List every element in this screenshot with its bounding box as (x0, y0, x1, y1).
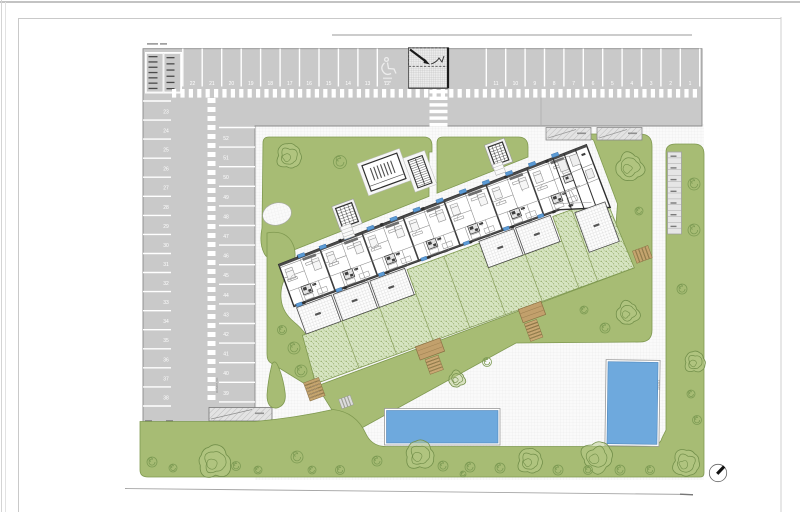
svg-text:25: 25 (163, 148, 169, 154)
svg-text:4: 4 (630, 81, 633, 87)
svg-text:24: 24 (163, 129, 169, 135)
svg-text:23: 23 (163, 110, 169, 116)
svg-text:18: 18 (268, 81, 274, 87)
svg-text:20: 20 (229, 81, 235, 87)
svg-text:41: 41 (223, 352, 229, 358)
svg-text:44: 44 (223, 293, 229, 299)
svg-text:26: 26 (163, 167, 169, 173)
svg-text:42: 42 (223, 332, 229, 338)
svg-text:51: 51 (223, 156, 229, 162)
svg-text:11: 11 (493, 81, 498, 87)
svg-text:48: 48 (223, 214, 229, 220)
svg-text:16: 16 (306, 81, 312, 87)
svg-text:52: 52 (223, 136, 229, 142)
svg-text:33: 33 (163, 300, 169, 306)
svg-text:19: 19 (248, 81, 254, 87)
svg-text:3: 3 (650, 81, 653, 87)
svg-text:22: 22 (190, 81, 196, 87)
svg-text:40: 40 (223, 371, 229, 377)
svg-text:43: 43 (223, 312, 229, 318)
svg-text:34: 34 (163, 319, 169, 325)
svg-text:47: 47 (223, 234, 229, 240)
svg-text:8: 8 (553, 81, 556, 87)
svg-text:2: 2 (669, 81, 672, 87)
svg-text:17: 17 (287, 81, 293, 87)
svg-text:7: 7 (572, 81, 575, 87)
svg-text:50: 50 (223, 175, 229, 181)
svg-text:37: 37 (163, 376, 169, 382)
svg-text:15: 15 (326, 81, 332, 87)
svg-text:39: 39 (223, 391, 229, 397)
svg-text:46: 46 (223, 254, 229, 260)
svg-text:21: 21 (209, 81, 215, 87)
svg-text:28: 28 (163, 205, 169, 211)
svg-text:9: 9 (533, 81, 536, 87)
svg-text:30: 30 (163, 243, 169, 249)
svg-text:45: 45 (223, 273, 229, 279)
svg-text:RAMPA 6%: RAMPA 6% (215, 377, 219, 393)
svg-text:31: 31 (163, 262, 169, 268)
svg-text:27: 27 (163, 186, 169, 192)
svg-text:49: 49 (223, 195, 229, 201)
svg-text:36: 36 (163, 357, 169, 363)
svg-text:13: 13 (365, 81, 371, 87)
svg-text:6: 6 (592, 81, 595, 87)
svg-text:29: 29 (163, 224, 169, 230)
svg-text:35: 35 (163, 338, 169, 344)
svg-text:10: 10 (513, 81, 519, 87)
svg-text:1: 1 (689, 81, 692, 87)
svg-text:5: 5 (611, 81, 614, 87)
svg-text:ACERA: ACERA (657, 380, 661, 390)
svg-text:38: 38 (163, 395, 169, 401)
svg-text:14: 14 (345, 81, 351, 87)
svg-text:32: 32 (163, 281, 169, 287)
